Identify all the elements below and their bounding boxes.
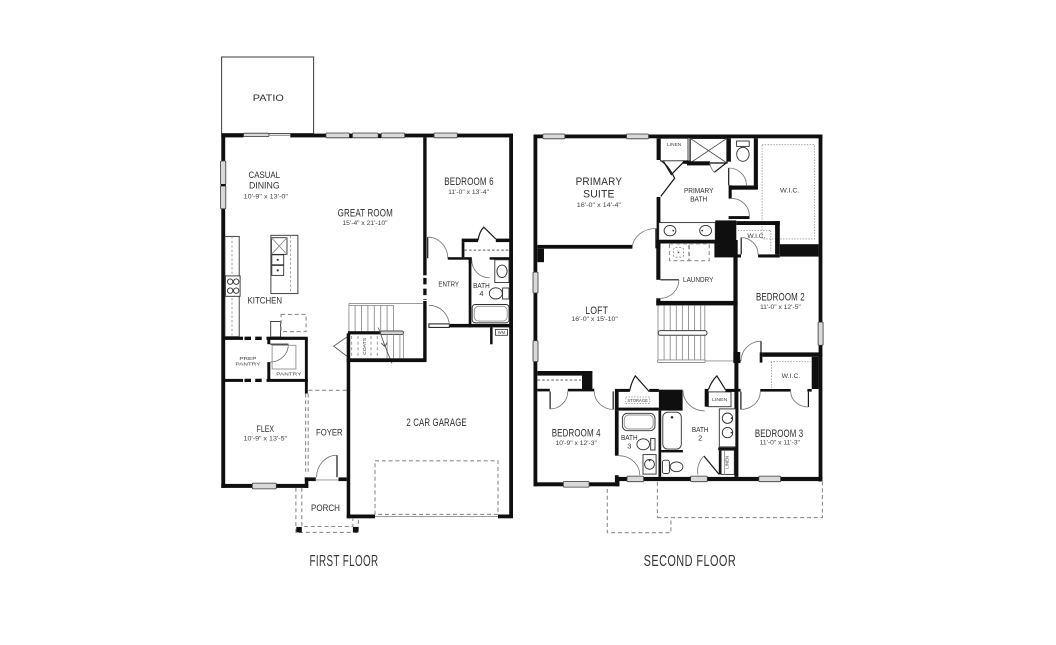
svg-text:PREP: PREP [239, 356, 256, 362]
svg-text:PATIO: PATIO [253, 93, 284, 103]
svg-text:W.I.C.: W.I.C. [780, 188, 800, 195]
svg-text:4: 4 [479, 289, 483, 298]
svg-text:15'-4" x 21'-10": 15'-4" x 21'-10" [342, 220, 388, 227]
svg-text:GREAT ROOM: GREAT ROOM [338, 207, 393, 219]
svg-text:PORCH: PORCH [311, 503, 340, 513]
svg-text:10'-9" x 12'-3": 10'-9" x 12'-3" [555, 440, 597, 447]
svg-text:SUITE: SUITE [583, 189, 615, 201]
svg-text:LINEN: LINEN [667, 142, 681, 147]
svg-text:KITCHEN: KITCHEN [248, 296, 283, 306]
svg-text:COATS: COATS [362, 338, 367, 355]
svg-text:10'-9" x 13'-5": 10'-9" x 13'-5" [244, 435, 288, 442]
svg-text:LINEN: LINEN [712, 397, 727, 402]
svg-text:2 CAR GARAGE: 2 CAR GARAGE [406, 417, 466, 429]
svg-text:BEDROOM 6: BEDROOM 6 [444, 176, 494, 188]
svg-text:11'-0" x 12'-5": 11'-0" x 12'-5" [760, 304, 801, 311]
svg-text:PANTRY: PANTRY [235, 362, 261, 368]
svg-text:BEDROOM 3: BEDROOM 3 [755, 428, 803, 440]
svg-text:16'-0" x 14'-4": 16'-0" x 14'-4" [577, 202, 622, 209]
svg-text:LAUNDRY: LAUNDRY [683, 275, 713, 284]
svg-text:BEDROOM 4: BEDROOM 4 [552, 427, 601, 439]
svg-text:W.I.C.: W.I.C. [782, 373, 801, 380]
svg-text:BEDROOM 2: BEDROOM 2 [756, 292, 805, 304]
svg-text:PRIMARY: PRIMARY [576, 176, 623, 188]
svg-text:10'-9" x 13'-0": 10'-9" x 13'-0" [244, 194, 289, 201]
svg-text:FIRST FLOOR: FIRST FLOOR [309, 553, 378, 570]
svg-text:BATH: BATH [690, 195, 707, 204]
svg-text:CASUAL: CASUAL [249, 170, 281, 180]
svg-text:16'-0" x 15'-10": 16'-0" x 15'-10" [571, 316, 618, 323]
svg-text:11'-0" x 13'-4": 11'-0" x 13'-4" [448, 189, 489, 196]
svg-text:WM: WM [498, 330, 506, 335]
svg-text:STORAGE: STORAGE [627, 398, 648, 403]
svg-text:FLEX: FLEX [257, 424, 275, 434]
svg-text:FOYER: FOYER [316, 428, 343, 438]
svg-text:2: 2 [698, 433, 702, 442]
svg-text:11'-0" x 11'-3": 11'-0" x 11'-3" [760, 440, 801, 447]
svg-text:PANTRY: PANTRY [276, 372, 302, 378]
svg-text:3: 3 [627, 441, 631, 450]
svg-text:SECOND FLOOR: SECOND FLOOR [644, 553, 737, 570]
svg-text:ENTRY: ENTRY [438, 279, 459, 288]
svg-text:DINING: DINING [249, 181, 280, 191]
svg-text:LINEN: LINEN [724, 456, 729, 469]
svg-text:W.I.C.: W.I.C. [747, 233, 765, 240]
